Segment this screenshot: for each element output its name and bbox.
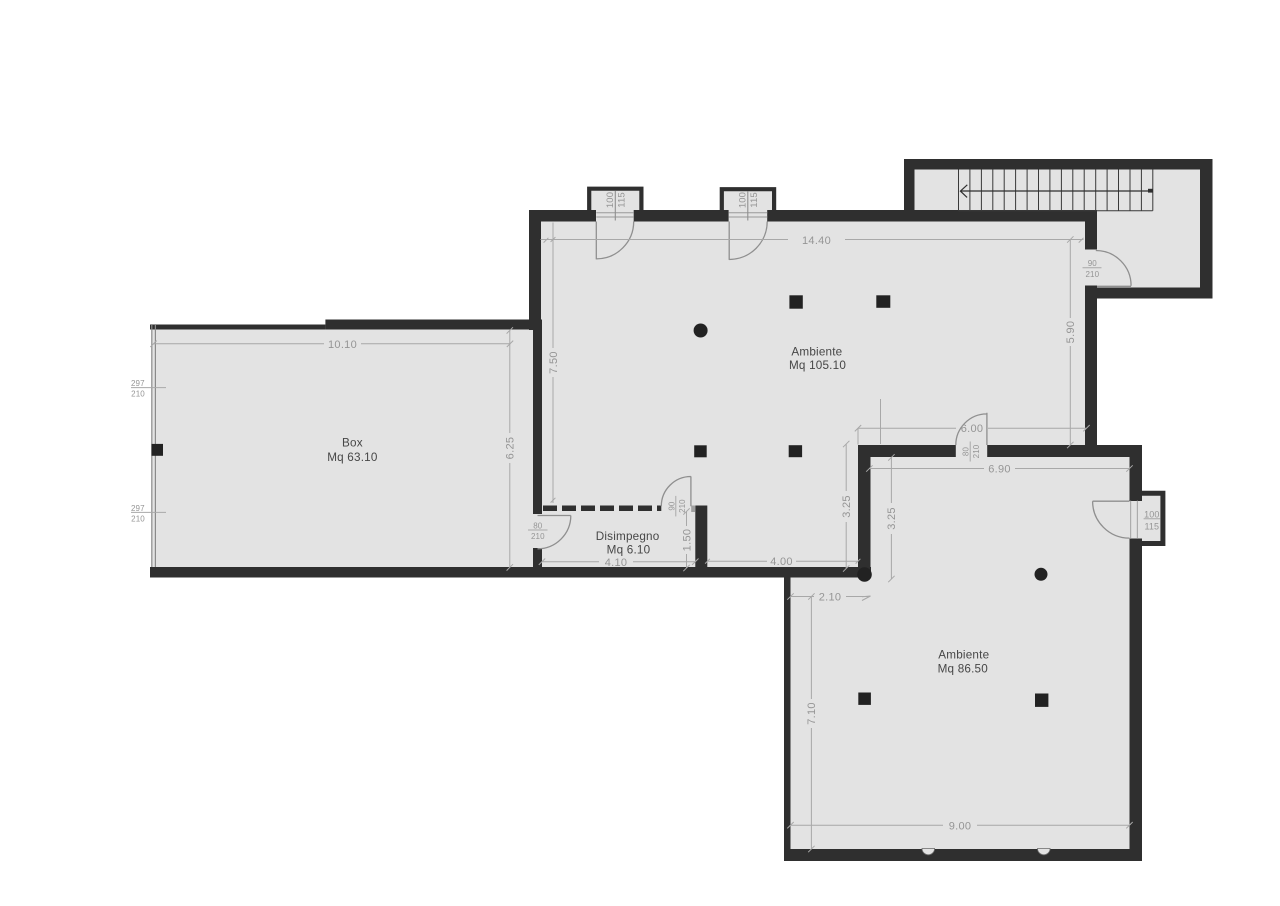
svg-text:210: 210 [1085, 270, 1099, 279]
svg-text:100: 100 [738, 192, 749, 208]
svg-text:4.10: 4.10 [605, 557, 628, 569]
svg-text:100: 100 [1144, 509, 1159, 519]
svg-text:297: 297 [131, 504, 145, 513]
svg-text:90: 90 [667, 501, 676, 511]
svg-text:210: 210 [531, 532, 545, 541]
svg-text:Mq 105.10: Mq 105.10 [789, 359, 846, 372]
svg-text:9.00: 9.00 [949, 820, 972, 832]
svg-text:Mq 63.10: Mq 63.10 [327, 451, 378, 464]
svg-text:210: 210 [972, 444, 981, 458]
svg-text:80: 80 [962, 447, 971, 457]
svg-text:Mq 86.50: Mq 86.50 [938, 663, 989, 676]
svg-text:115: 115 [617, 192, 628, 207]
svg-text:5.90: 5.90 [1065, 321, 1077, 344]
svg-text:10.10: 10.10 [328, 339, 357, 351]
svg-text:Box: Box [342, 437, 363, 450]
svg-text:297: 297 [131, 379, 145, 388]
svg-text:100: 100 [605, 192, 616, 208]
svg-text:3.25: 3.25 [841, 495, 853, 518]
svg-text:210: 210 [678, 499, 687, 513]
svg-text:210: 210 [131, 514, 145, 523]
svg-text:Ambiente: Ambiente [938, 649, 989, 662]
svg-text:4.00: 4.00 [770, 556, 793, 568]
svg-text:90: 90 [1088, 259, 1098, 268]
svg-text:Disimpegno: Disimpegno [596, 530, 660, 543]
svg-text:115: 115 [749, 192, 760, 207]
svg-text:115: 115 [1144, 521, 1159, 531]
svg-text:6.25: 6.25 [505, 437, 517, 460]
svg-text:6.90: 6.90 [988, 464, 1011, 476]
svg-text:Ambiente: Ambiente [791, 346, 842, 359]
svg-text:2.10: 2.10 [819, 592, 842, 604]
svg-text:1.50: 1.50 [681, 529, 693, 552]
svg-text:7.10: 7.10 [806, 702, 818, 725]
svg-text:7.50: 7.50 [548, 351, 560, 374]
svg-text:3.25: 3.25 [886, 507, 898, 530]
svg-text:80: 80 [533, 522, 543, 531]
svg-text:14.40: 14.40 [802, 235, 831, 247]
svg-text:210: 210 [131, 390, 145, 399]
svg-text:6.00: 6.00 [961, 423, 984, 435]
svg-text:Mq 6.10: Mq 6.10 [607, 543, 651, 556]
